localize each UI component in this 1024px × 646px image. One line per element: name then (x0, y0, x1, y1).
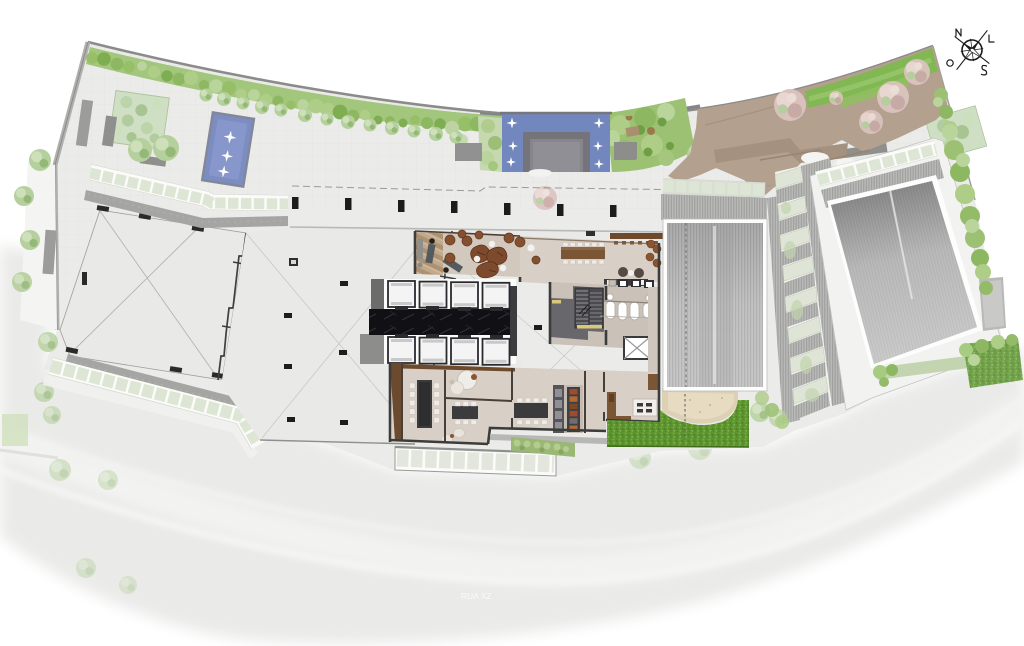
svg-text:RUA XZ: RUA XZ (461, 591, 492, 601)
